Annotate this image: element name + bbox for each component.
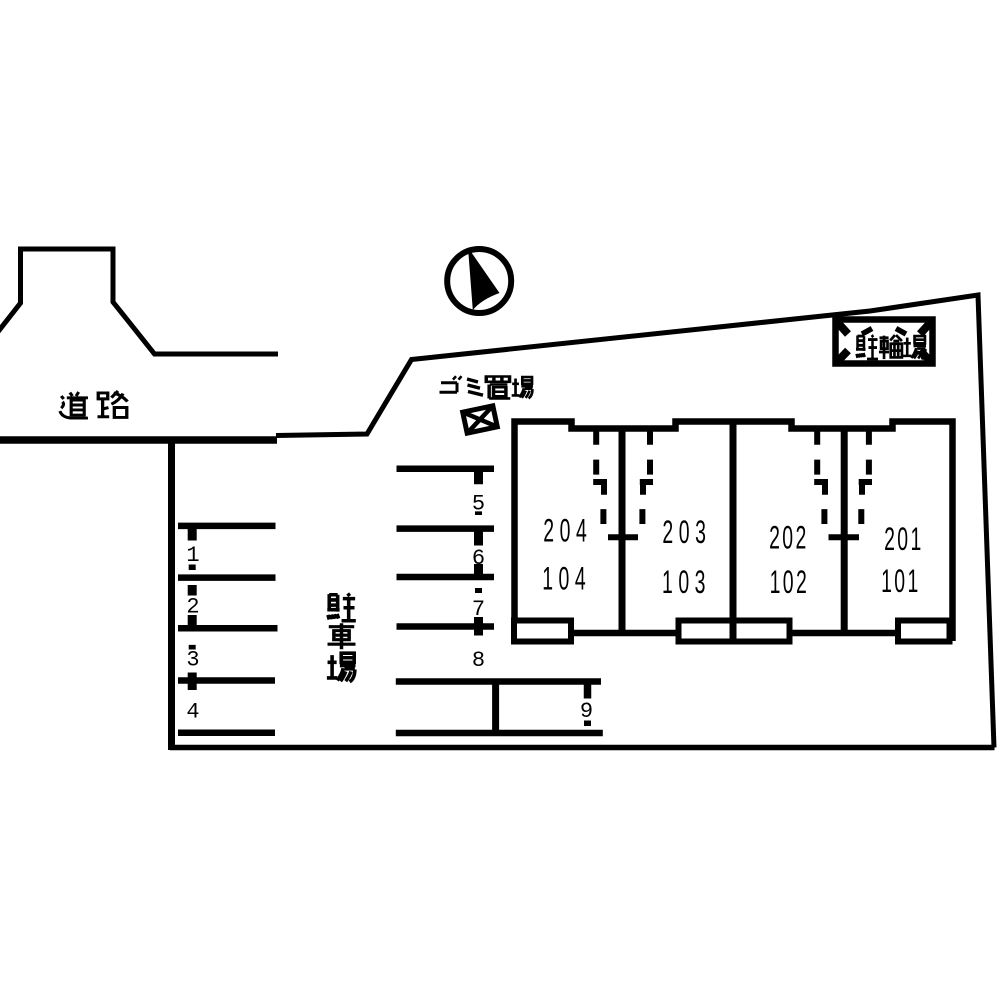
- svg-text:201: 201: [884, 521, 924, 557]
- svg-text:4: 4: [186, 699, 199, 724]
- svg-text:3: 3: [186, 648, 199, 673]
- svg-text:8: 8: [472, 648, 485, 673]
- svg-text:101: 101: [881, 563, 921, 599]
- svg-text:203: 203: [662, 514, 711, 550]
- svg-text:204: 204: [543, 513, 592, 549]
- svg-text:6: 6: [472, 546, 485, 571]
- svg-text:7: 7: [472, 597, 485, 622]
- svg-text:1: 1: [186, 543, 199, 568]
- svg-text:2: 2: [186, 595, 199, 620]
- svg-text:104: 104: [542, 560, 591, 596]
- svg-text:102: 102: [770, 564, 810, 600]
- svg-text:103: 103: [662, 564, 711, 600]
- svg-text:202: 202: [769, 520, 809, 556]
- svg-text:9: 9: [580, 699, 593, 724]
- svg-text:5: 5: [472, 492, 485, 517]
